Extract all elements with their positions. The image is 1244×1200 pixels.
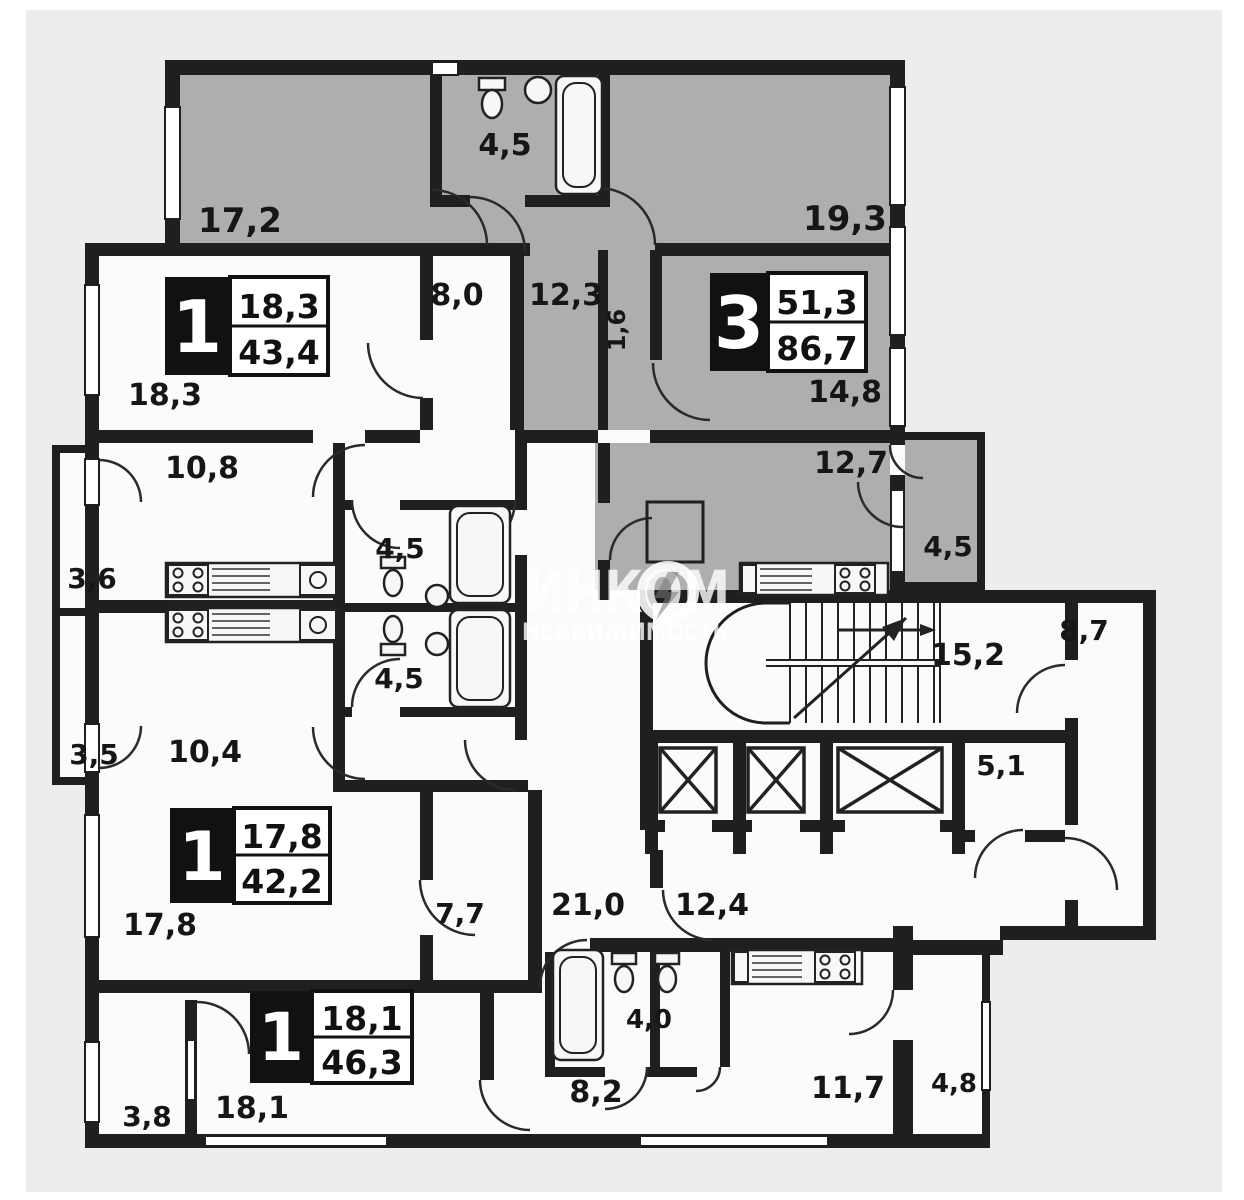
room-label: 5,1 — [976, 749, 1026, 782]
room-label: 10,4 — [168, 735, 242, 770]
room-label: 18,1 — [215, 1091, 289, 1126]
room-label: 4,5 — [374, 662, 424, 695]
room-label: 18,3 — [128, 378, 202, 413]
apartment-living-area: 17,8 — [241, 817, 322, 856]
kitchen-counter — [732, 950, 862, 984]
watermark: ИНКОМ НЕДВИЖИМОСТЬ — [522, 558, 730, 646]
room-label: 10,8 — [165, 451, 239, 486]
toilet — [655, 953, 679, 992]
sink — [426, 633, 448, 655]
room-label: 4,5 — [478, 128, 531, 163]
apartment-rooms-count: 1 — [172, 285, 222, 369]
bathtub — [450, 506, 510, 603]
room-label: 4,0 — [626, 1005, 672, 1035]
room-label: 12,7 — [814, 446, 888, 481]
kitchen-counter — [166, 563, 338, 597]
watermark-brand: ИНКОМ — [525, 558, 730, 626]
apartment-info-box-1-top: 1 18,3 43,4 — [165, 277, 328, 375]
sink — [525, 77, 551, 103]
apartment-living-area: 51,3 — [776, 283, 857, 322]
bathtub — [556, 76, 602, 194]
toilet — [381, 616, 405, 655]
room-label: 4,5 — [375, 532, 425, 565]
toilet — [479, 78, 505, 118]
room-label: 17,2 — [198, 201, 282, 241]
watermark-subtitle: НЕДВИЖИМОСТЬ — [522, 618, 728, 646]
room-label: 7,7 — [435, 897, 485, 930]
bathtub — [553, 950, 603, 1060]
room-label: 4,5 — [923, 530, 973, 563]
apartment-rooms-count: 1 — [258, 999, 304, 1076]
room-label: 12,3 — [529, 278, 603, 313]
apartment-living-area: 18,1 — [321, 999, 402, 1038]
room-label: 3,5 — [69, 738, 119, 771]
room-label: 19,3 — [803, 199, 887, 239]
floorplan-svg: 17,2 4,5 19,3 8,0 12,3 1,6 14,8 18,3 10,… — [0, 0, 1244, 1200]
room-label: 4,8 — [931, 1069, 977, 1099]
bathtub — [450, 610, 510, 707]
apartment-info-box-1-bottom: 1 18,1 46,3 — [250, 991, 412, 1083]
apartment-total-area: 43,4 — [238, 333, 319, 372]
apartment-total-area: 46,3 — [321, 1043, 402, 1082]
room-label: 17,8 — [123, 908, 197, 943]
apartment-info-box-1-middle: 1 17,8 42,2 — [170, 808, 330, 903]
apartment-total-area: 42,2 — [241, 862, 322, 901]
room-label: 8,2 — [569, 1075, 622, 1110]
room-label: 3,6 — [67, 562, 117, 595]
room-label: 21,0 — [551, 888, 625, 923]
room-label: 11,7 — [811, 1071, 885, 1106]
room-label: 3,8 — [122, 1100, 172, 1133]
room-label: 12,4 — [675, 888, 749, 923]
room-label: 8,7 — [1059, 614, 1109, 647]
floorplan-scan: 17,2 4,5 19,3 8,0 12,3 1,6 14,8 18,3 10,… — [0, 0, 1244, 1200]
room-label: 8,0 — [430, 278, 483, 313]
apartment-rooms-count: 3 — [714, 281, 764, 365]
room-label: 1,6 — [603, 309, 631, 352]
kitchen-counter — [166, 608, 338, 642]
toilet — [612, 953, 636, 992]
apartment-living-area: 18,3 — [238, 287, 319, 326]
sink — [426, 585, 448, 607]
apartment-info-box-3: 3 51,3 86,7 — [710, 273, 866, 371]
apartment-rooms-count: 1 — [178, 818, 225, 897]
room-label: 15,2 — [931, 638, 1005, 673]
apartment-total-area: 86,7 — [776, 329, 857, 368]
kitchen-counter — [740, 563, 888, 595]
room-label: 14,8 — [808, 375, 882, 410]
